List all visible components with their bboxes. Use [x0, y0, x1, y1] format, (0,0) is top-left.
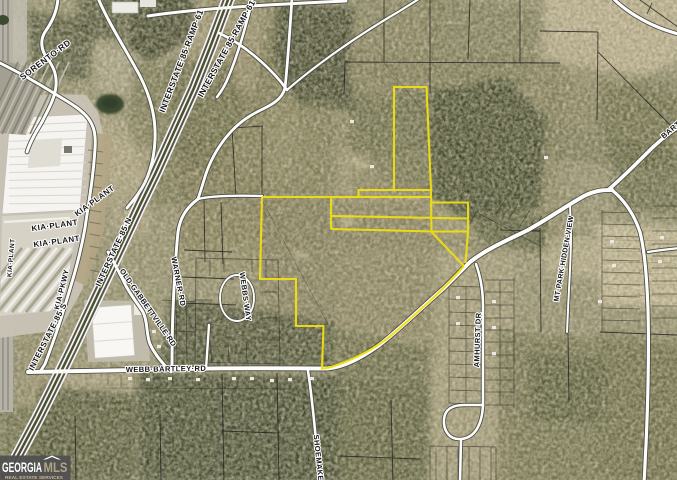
svg-text:WEBB·BARTLEY·RD: WEBB·BARTLEY·RD — [126, 364, 207, 374]
svg-text:GEORGIA: GEORGIA — [2, 460, 42, 475]
svg-text:MLS: MLS — [44, 460, 68, 475]
svg-text:REAL ESTATE SERVICES: REAL ESTATE SERVICES — [5, 475, 63, 480]
svg-text:AMHURST·DR: AMHURST·DR — [472, 312, 483, 367]
